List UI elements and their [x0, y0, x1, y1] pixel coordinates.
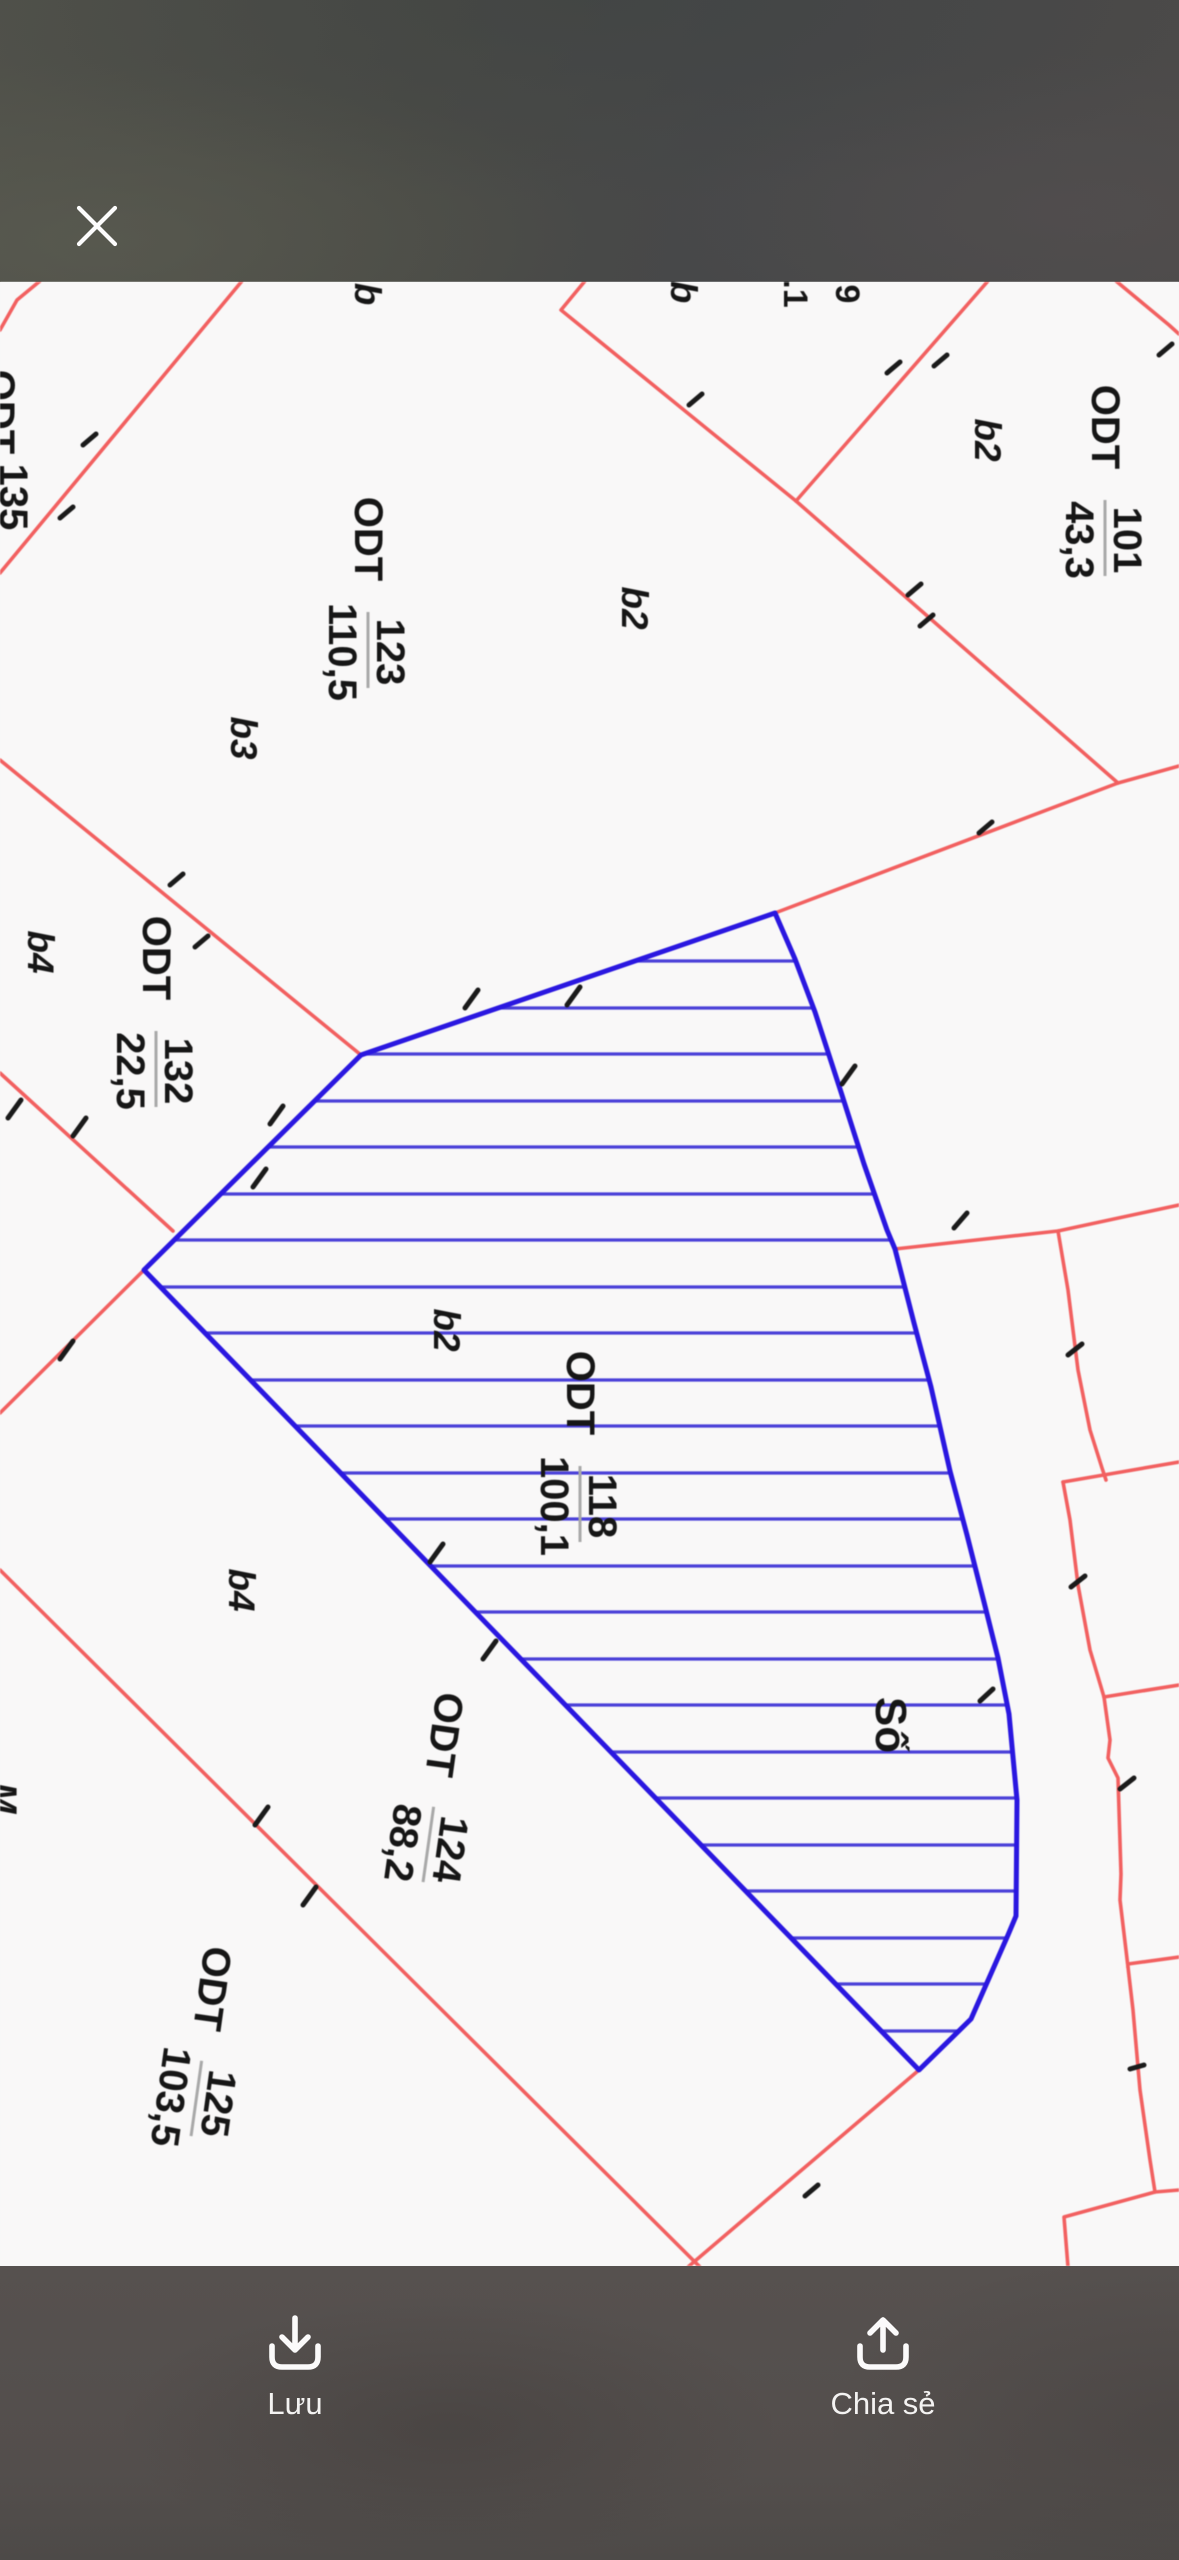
svg-text:b4: b4: [221, 1568, 262, 1611]
svg-text:b2: b2: [426, 1308, 467, 1352]
svg-text:ODT: ODT: [558, 1351, 602, 1435]
svg-text:b4: b4: [20, 930, 61, 973]
svg-text:123: 123: [368, 619, 412, 686]
svg-text:Số: Số: [866, 1697, 915, 1753]
svg-text:101: 101: [1105, 507, 1149, 574]
svg-text:22,5: 22,5: [108, 1032, 152, 1110]
svg-text:110,5: 110,5: [320, 603, 364, 701]
svg-text:100,1: 100,1: [532, 1456, 576, 1556]
svg-text:118: 118: [580, 1474, 624, 1539]
svg-text:b2: b2: [614, 586, 655, 630]
svg-text:ODT: ODT: [346, 497, 390, 581]
svg-text:132: 132: [156, 1038, 200, 1105]
svg-text:b: b: [347, 283, 388, 306]
svg-text:43,3: 43,3: [1057, 501, 1101, 579]
svg-text:6.1: 6.1: [776, 282, 814, 308]
svg-text:M: M: [0, 1783, 24, 1815]
svg-text:9: 9: [828, 285, 866, 304]
svg-text:Lưu: Lưu: [267, 2386, 322, 2421]
svg-text:135: 135: [0, 464, 35, 531]
svg-text:Chia sẻ: Chia sẻ: [830, 2386, 935, 2421]
svg-text:b2: b2: [967, 418, 1008, 462]
svg-text:ODT: ODT: [1083, 385, 1127, 469]
svg-text:ODT: ODT: [0, 370, 22, 454]
svg-text:ODT: ODT: [134, 916, 178, 1000]
svg-text:b: b: [663, 282, 704, 303]
svg-text:b3: b3: [223, 716, 264, 760]
